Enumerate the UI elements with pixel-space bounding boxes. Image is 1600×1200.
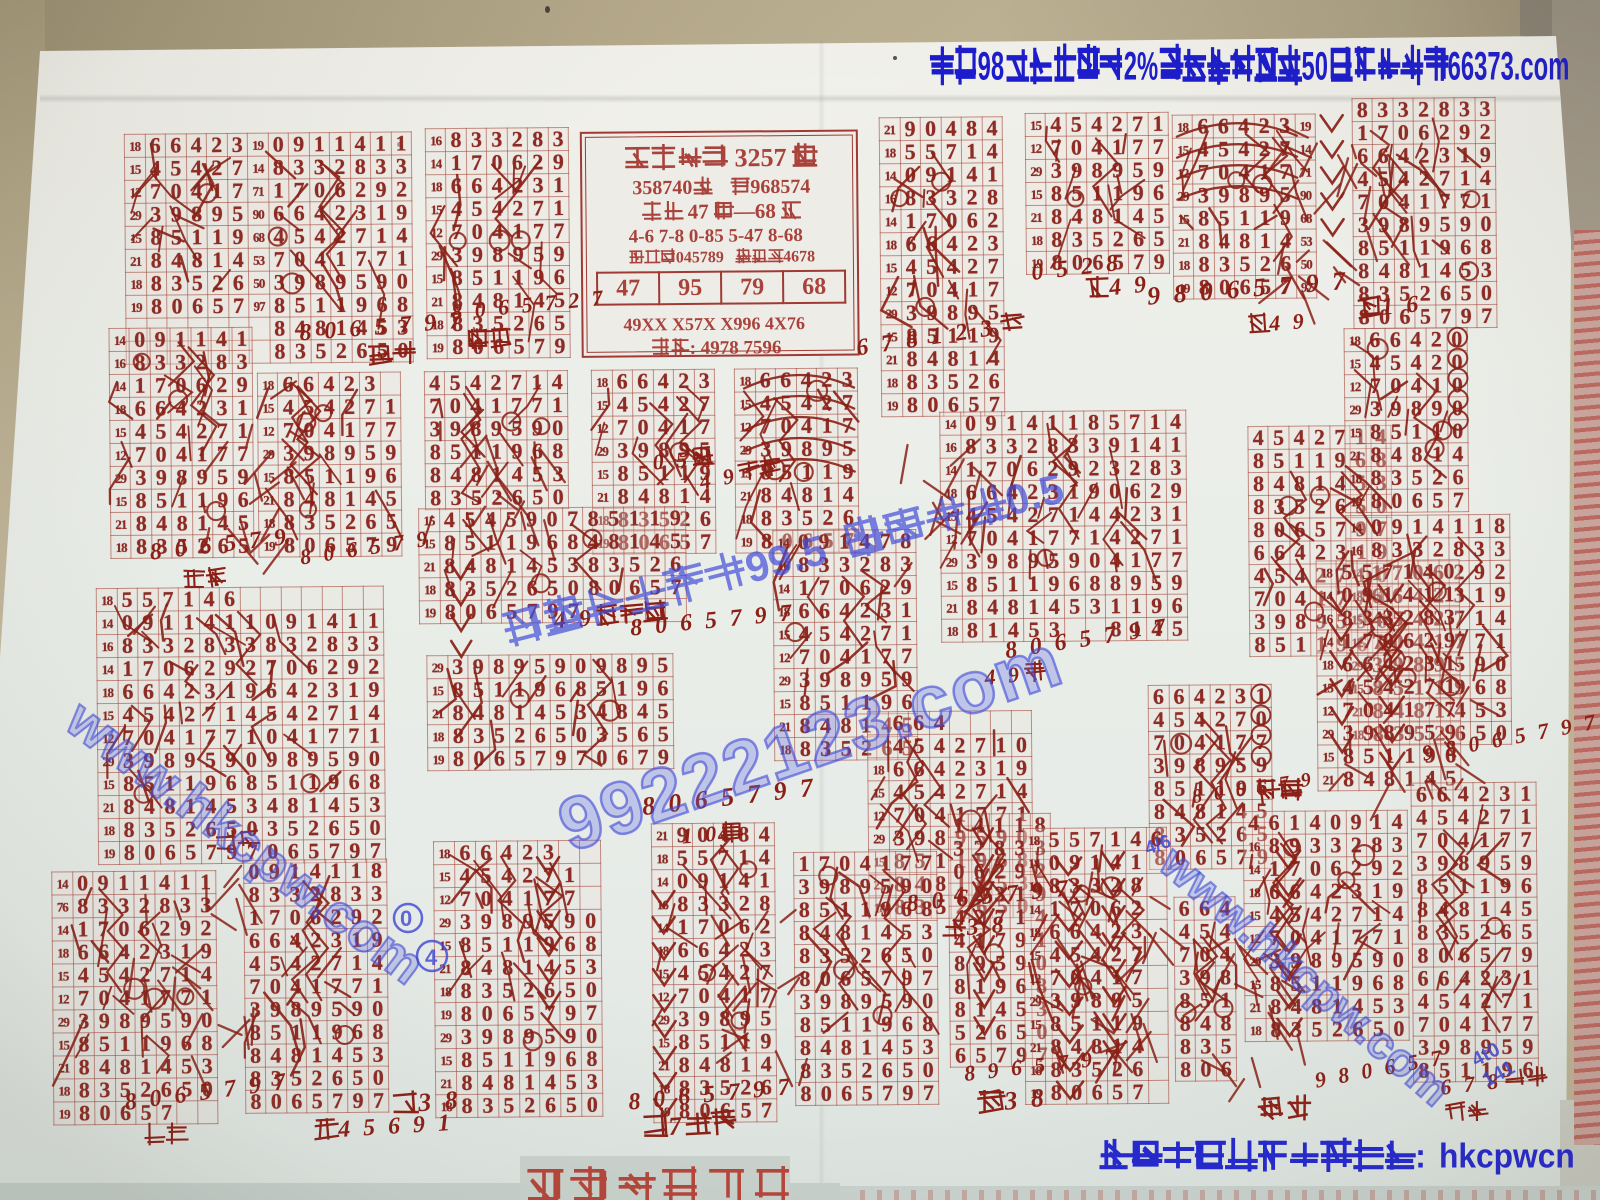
svg-text:3257: 3257 bbox=[734, 143, 786, 172]
svg-text:—: — bbox=[733, 199, 756, 223]
svg-text:47: 47 bbox=[688, 199, 709, 223]
svg-text:4678: 4678 bbox=[783, 248, 815, 265]
svg-text:49XX X57X X996 4X76: 49XX X57X X996 4X76 bbox=[623, 313, 805, 335]
svg-text:968574: 968574 bbox=[750, 176, 810, 199]
svg-text:4 9: 4 9 bbox=[1107, 272, 1151, 302]
svg-text:4 9: 4 9 bbox=[1267, 308, 1308, 336]
svg-text:358740: 358740 bbox=[632, 177, 692, 200]
svg-text:0: 0 bbox=[400, 906, 412, 931]
svg-text:4-6 7-8 0-85 5-47 8-68: 4-6 7-8 0-85 5-47 8-68 bbox=[629, 225, 803, 248]
svg-text:68: 68 bbox=[755, 199, 776, 223]
svg-text:: 4978 7596: : 4978 7596 bbox=[690, 337, 782, 359]
svg-text:045789: 045789 bbox=[676, 249, 724, 266]
svg-text:4: 4 bbox=[425, 945, 438, 970]
